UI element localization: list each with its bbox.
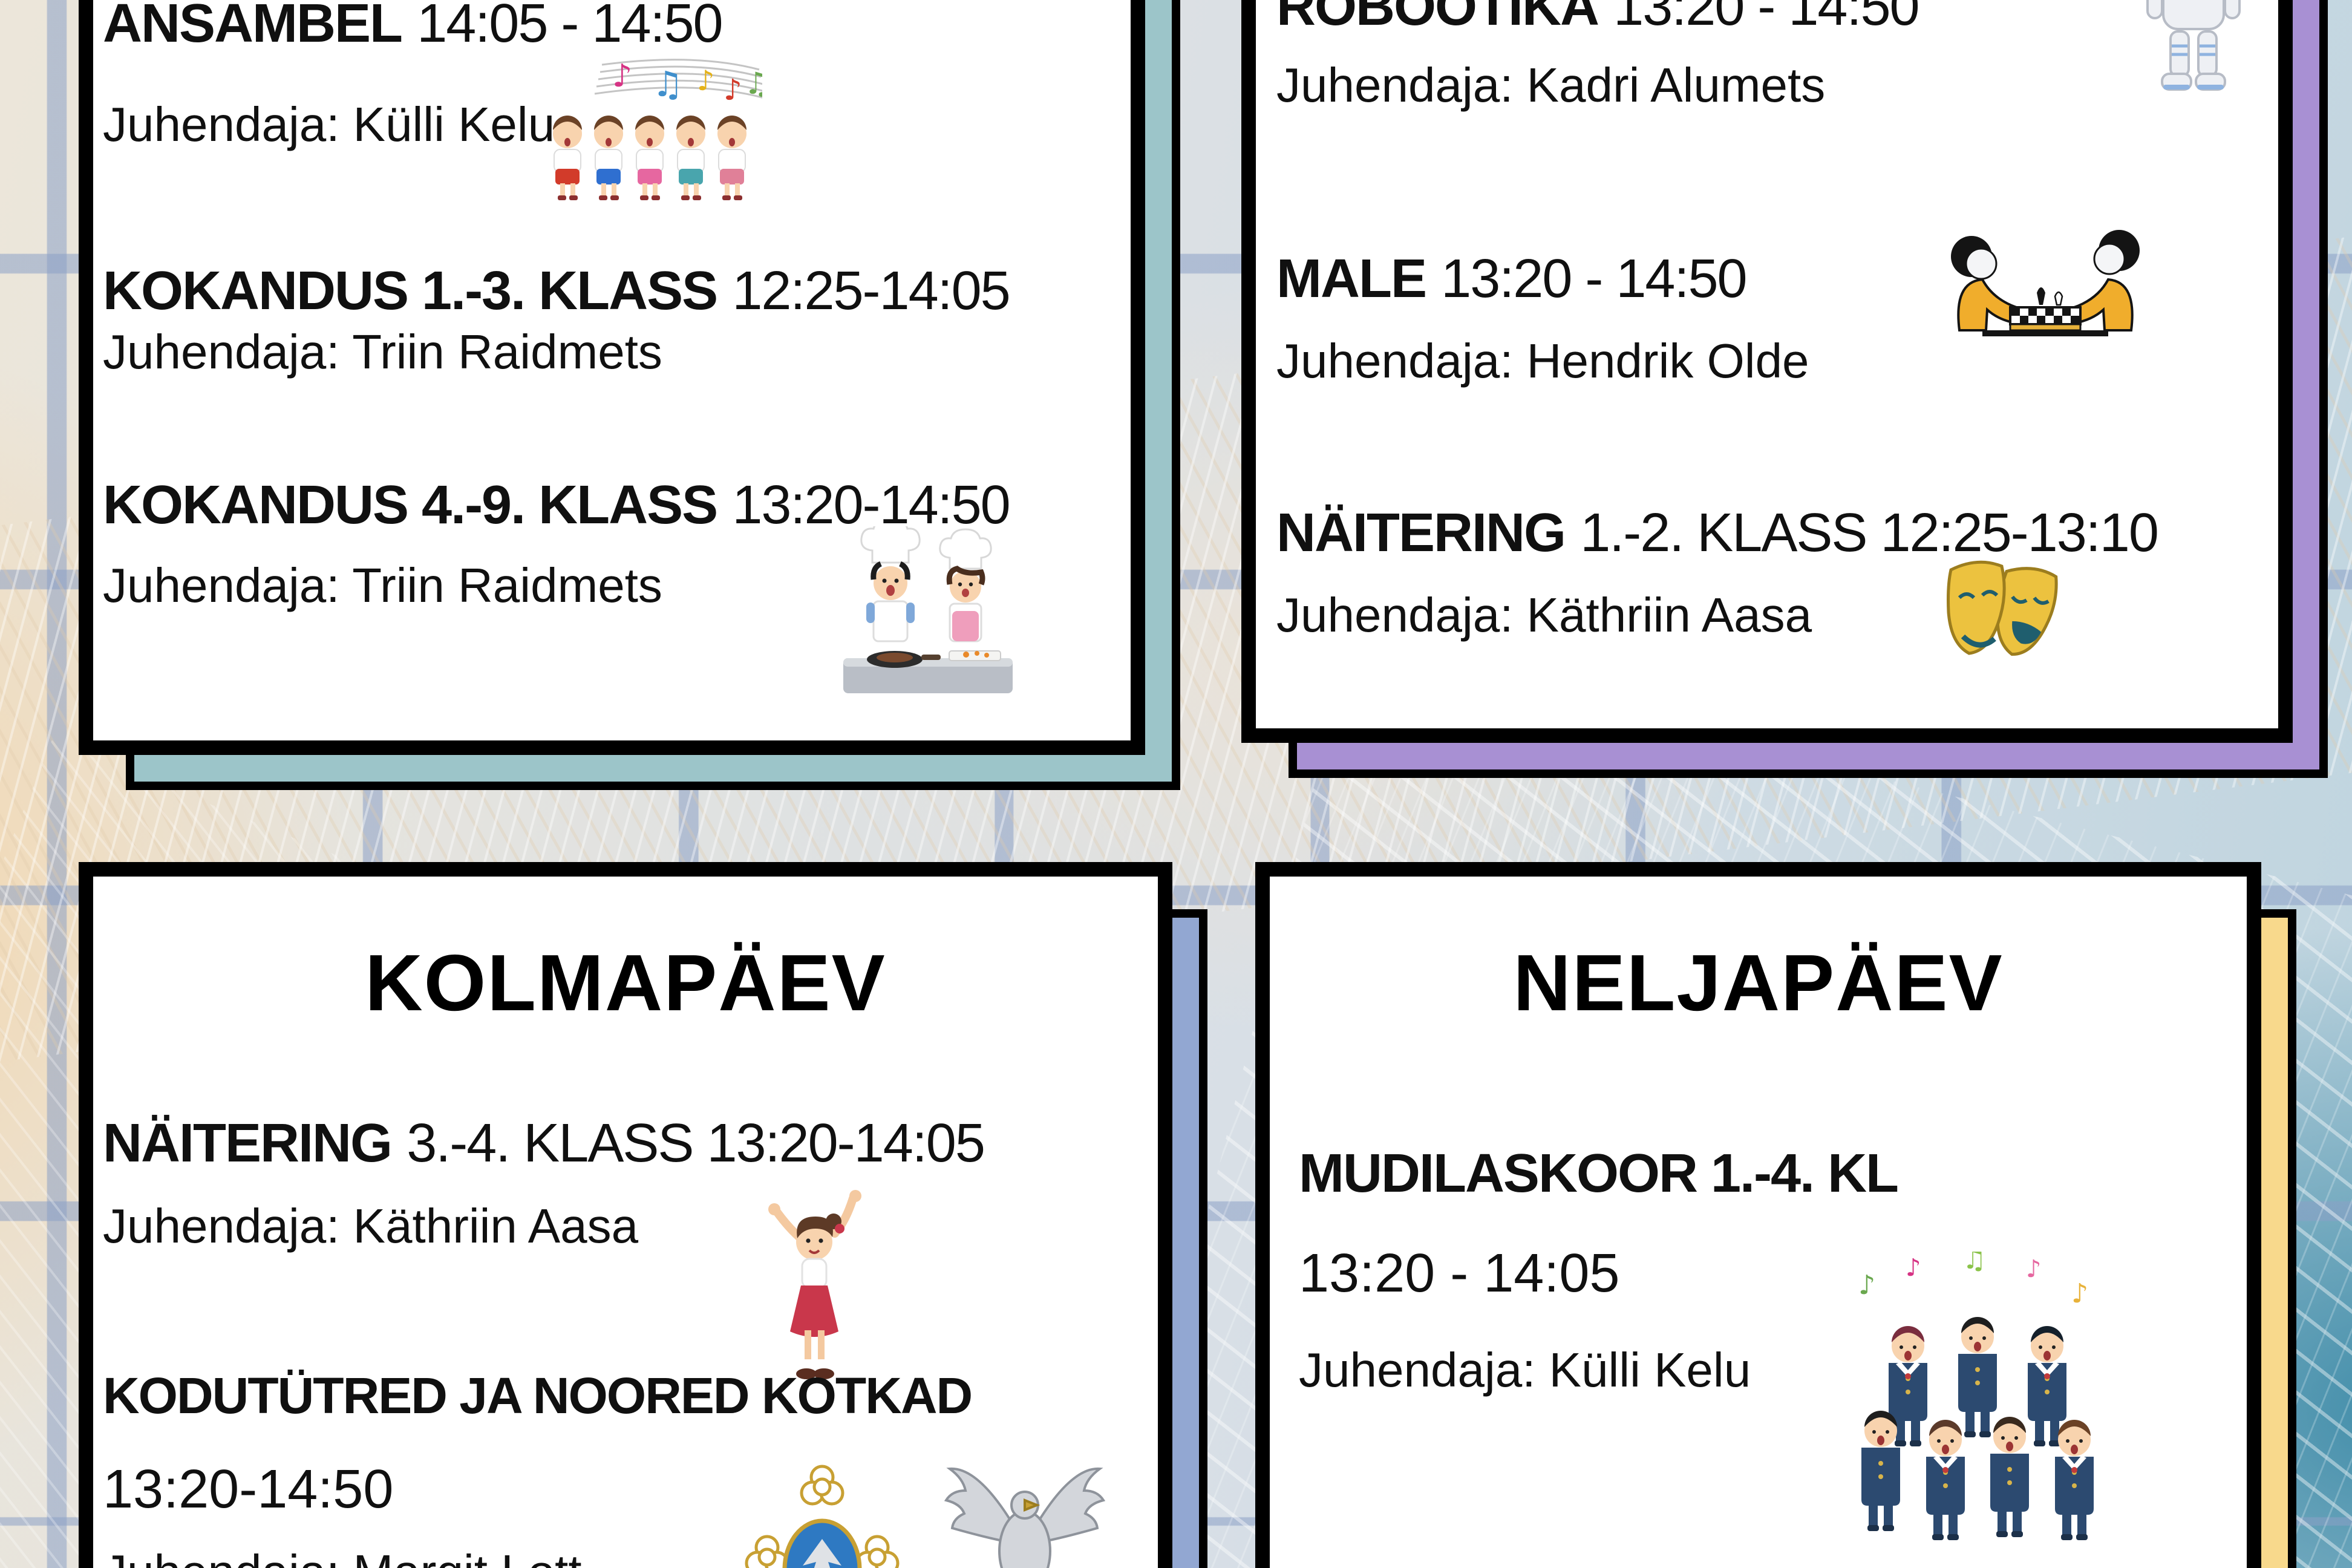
noored-kotkad-emblem-icon — [940, 1442, 1109, 1568]
entry-heading: NÄITERING3.-4. KLASS 13:20-14:05 — [103, 1112, 984, 1175]
instructor-line: Juhendaja: Triin Raidmets — [103, 558, 662, 613]
activity-time: 14:05 - 14:50 — [417, 0, 722, 54]
theater-masks-icon — [1942, 557, 2082, 687]
entry-heading: KODUTÜTRED JA NOORED KOTKAD — [103, 1367, 972, 1425]
svg-text:♫: ♫ — [744, 66, 762, 101]
svg-text:♪: ♪ — [1858, 1270, 1875, 1301]
kodutytred-emblem-icon — [728, 1448, 916, 1568]
instructor-line: Juhendaja: Käthriin Aasa — [1276, 587, 1812, 643]
day-title-thursday: NELJAPÄEV — [1270, 937, 2247, 1028]
cooking-kids-icon — [837, 526, 1019, 702]
instructor-line: Juhendaja: Külli Kelu — [1299, 1342, 1751, 1398]
activity-name: KOKANDUS 1.-3. KLASS — [103, 261, 717, 321]
entry-heading: KOKANDUS 1.-3. KLASS12:25-14:05 — [103, 260, 1010, 323]
day-title-wednesday: KOLMAPÄEV — [93, 937, 1158, 1028]
activity-name: KODUTÜTRED JA NOORED KOTKAD — [103, 1367, 972, 1424]
instructor-line: Juhendaja: Hendrik Olde — [1276, 333, 1809, 389]
dancing-girl-icon — [742, 1174, 881, 1392]
instructor-line: Juhendaja: Margit Lott — [103, 1544, 582, 1568]
robot-icon — [2139, 0, 2248, 103]
card-top-left: ANSAMBEL14:05 - 14:50 Juhendaja: Külli K… — [79, 0, 1145, 755]
activity-name: MALE — [1276, 249, 1426, 309]
card-bottom-left: KOLMAPÄEV NÄITERING3.-4. KLASS 13:20-14:… — [79, 862, 1172, 1568]
chess-players-icon — [1924, 212, 2166, 369]
entry-heading: NÄITERING1.-2. KLASS 12:25-13:10 — [1276, 502, 2158, 565]
school-choir-icon: ♪ ♪ ♫ ♪ ♪ — [1847, 1252, 2108, 1554]
activity-time: 3.-4. KLASS 13:20-14:05 — [407, 1113, 984, 1174]
activity-name: MUDILASKOOR 1.-4. KL — [1299, 1143, 1898, 1204]
schedule-poster: ANSAMBEL14:05 - 14:50 Juhendaja: Külli K… — [0, 0, 2352, 1568]
svg-text:♪: ♪ — [1906, 1254, 1921, 1282]
activity-name: ROBOOTIKA — [1276, 0, 1598, 37]
activity-name: NÄITERING — [103, 1113, 391, 1174]
activity-time: 1.-2. KLASS 12:25-13:10 — [1580, 503, 2158, 563]
activity-time: 13:20-14:50 — [103, 1459, 393, 1521]
entry-heading: ANSAMBEL14:05 - 14:50 — [103, 0, 722, 56]
instructor-line: Juhendaja: Külli Kelu — [103, 97, 555, 152]
activity-name: ANSAMBEL — [103, 0, 402, 54]
card-bottom-right: NELJAPÄEV MUDILASKOOR 1.-4. KL 13:20 - 1… — [1255, 862, 2261, 1568]
instructor-line: Juhendaja: Triin Raidmets — [103, 324, 662, 380]
svg-text:♫: ♫ — [652, 64, 684, 105]
entry-heading: ROBOOTIKA13:20 - 14:50 — [1276, 0, 1919, 39]
svg-text:♪: ♪ — [2071, 1278, 2088, 1309]
activity-time: 13:20 - 14:50 — [1613, 0, 1918, 37]
activity-name: NÄITERING — [1276, 503, 1565, 563]
activity-time: 12:25-14:05 — [732, 261, 1009, 321]
instructor-line: Juhendaja: Käthriin Aasa — [103, 1198, 638, 1254]
entry-heading: MUDILASKOOR 1.-4. KL — [1299, 1143, 1898, 1206]
svg-text:♪: ♪ — [724, 73, 742, 107]
children-choir-icon: ♪ ♫ ♪ ♪ ♫ — [544, 51, 762, 203]
svg-text:♫: ♫ — [1962, 1252, 1986, 1275]
svg-text:♪: ♪ — [2026, 1255, 2042, 1283]
entry-heading: MALE13:20 - 14:50 — [1276, 248, 1746, 311]
activity-time: 13:20 - 14:50 — [1441, 249, 1746, 309]
activity-time: 13:20 - 14:05 — [1299, 1243, 1619, 1305]
svg-text:♪: ♪ — [612, 58, 632, 94]
card-top-right: ROBOOTIKA13:20 - 14:50 Juhendaja: Kadri … — [1241, 0, 2293, 743]
instructor-line: Juhendaja: Kadri Alumets — [1276, 57, 1825, 113]
svg-text:♪: ♪ — [697, 64, 714, 97]
activity-name: KOKANDUS 4.-9. KLASS — [103, 475, 717, 535]
